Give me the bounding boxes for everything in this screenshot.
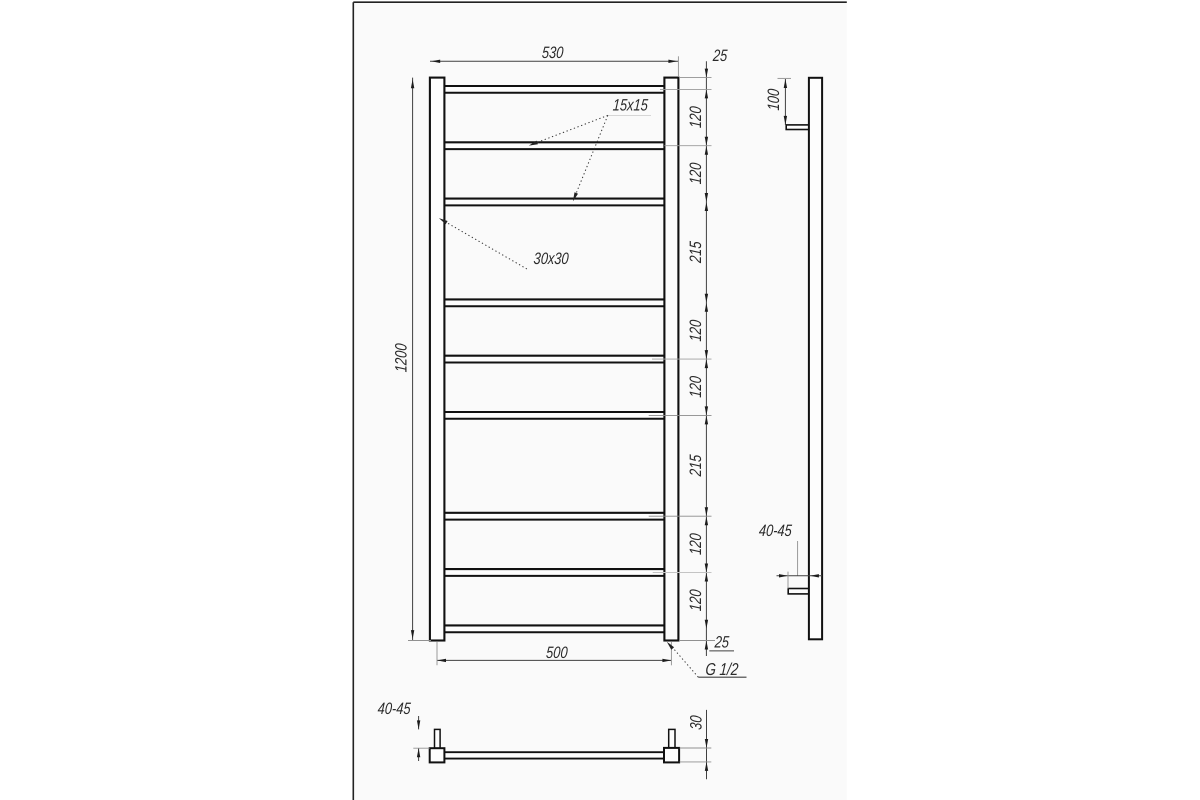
svg-text:215: 215 — [687, 454, 705, 478]
svg-text:15x15: 15x15 — [612, 97, 649, 115]
svg-text:500: 500 — [545, 645, 568, 663]
svg-text:40-45: 40-45 — [758, 522, 793, 540]
svg-text:120: 120 — [687, 319, 705, 342]
svg-text:120: 120 — [687, 162, 705, 185]
svg-text:120: 120 — [687, 532, 705, 555]
svg-text:25: 25 — [713, 634, 730, 652]
svg-text:120: 120 — [687, 375, 705, 398]
svg-text:120: 120 — [687, 588, 705, 611]
svg-text:25: 25 — [711, 47, 728, 65]
svg-text:30: 30 — [688, 714, 706, 730]
svg-text:530: 530 — [541, 45, 564, 63]
svg-text:1200: 1200 — [393, 342, 411, 372]
svg-text:215: 215 — [687, 240, 705, 264]
svg-text:G 1/2: G 1/2 — [705, 661, 739, 680]
svg-text:40-45: 40-45 — [377, 700, 412, 718]
svg-text:120: 120 — [687, 105, 705, 128]
svg-text:30x30: 30x30 — [533, 251, 570, 269]
svg-text:100: 100 — [765, 88, 783, 111]
